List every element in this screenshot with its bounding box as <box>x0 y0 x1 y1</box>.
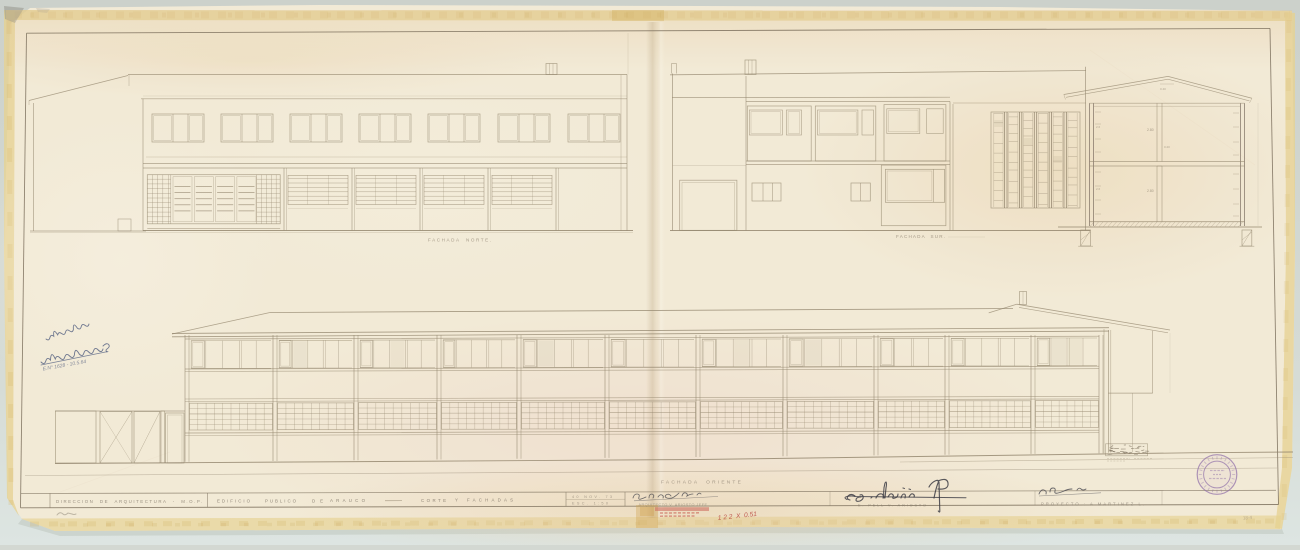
svg-text:18-4: 18-4 <box>1243 515 1253 521</box>
svg-text:40 NOV. 73: 40 NOV. 73 <box>572 495 612 499</box>
svg-text:E. PELL V. ARIOSTO: E. PELL V. ARIOSTO <box>858 504 926 508</box>
svg-text:2.6: 2.6 <box>1096 125 1101 129</box>
svg-text:0.40: 0.40 <box>1160 87 1166 91</box>
svg-text:0.20: 0.20 <box>1164 145 1170 149</box>
svg-text:2.80: 2.80 <box>1147 189 1154 193</box>
svg-text:FACHADA NORTE.: FACHADA NORTE. <box>428 238 492 243</box>
svg-text:FACHADA SUR.: FACHADA SUR. <box>896 234 946 239</box>
svg-text:PUBLICO: PUBLICO <box>265 499 297 504</box>
svg-text:ESC. 1:50: ESC. 1:50 <box>572 502 608 506</box>
svg-text:Y: Y <box>455 498 458 503</box>
svg-text:PROYECTO : A MARTINEZ L.: PROYECTO : A MARTINEZ L. <box>1041 501 1144 506</box>
svg-text:2.80: 2.80 <box>1147 128 1154 132</box>
svg-text:FACHADA ORIENTE: FACHADA ORIENTE <box>661 480 742 486</box>
svg-text:2.6: 2.6 <box>1096 187 1101 191</box>
